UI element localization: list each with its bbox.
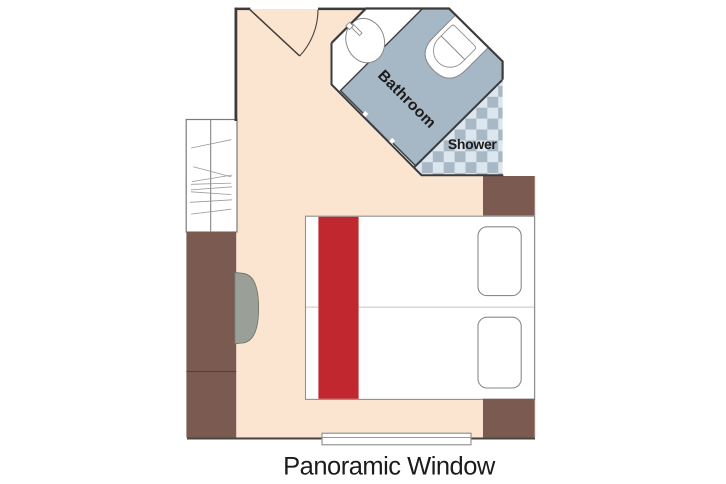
svg-text:Panoramic Window: Panoramic Window [283, 452, 496, 480]
svg-text:Shower: Shower [448, 136, 498, 152]
